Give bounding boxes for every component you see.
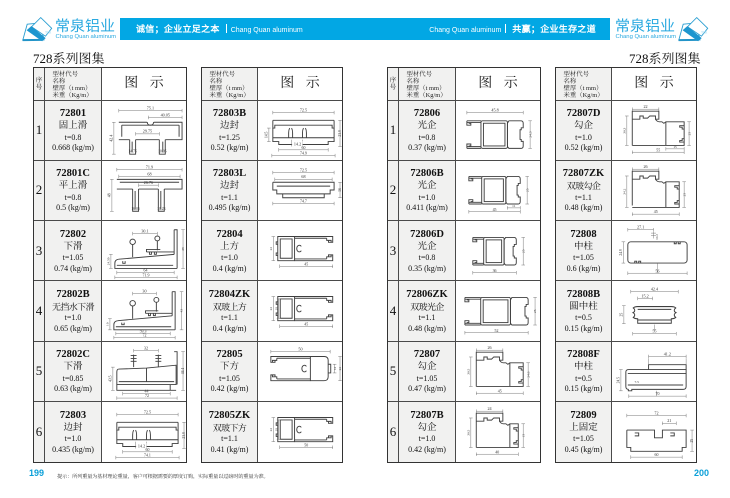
svg-text:30.1: 30.1 <box>141 228 148 233</box>
svg-text:24.9: 24.9 <box>619 249 623 256</box>
svg-text:60: 60 <box>301 146 305 150</box>
svg-text:14.2: 14.2 <box>137 443 144 448</box>
svg-text:22: 22 <box>269 307 273 311</box>
svg-text:40: 40 <box>495 450 499 454</box>
svg-text:43.5: 43.5 <box>108 376 112 383</box>
svg-text:74.9: 74.9 <box>300 152 307 156</box>
svg-text:34.2: 34.2 <box>622 189 626 195</box>
svg-text:72.5: 72.5 <box>299 108 306 113</box>
svg-text:72: 72 <box>654 410 658 415</box>
svg-text:32: 32 <box>143 346 147 351</box>
svg-text:25: 25 <box>619 313 623 317</box>
svg-text:74.7: 74.7 <box>300 200 307 204</box>
svg-text:25: 25 <box>525 189 529 193</box>
svg-text:30: 30 <box>142 288 146 293</box>
svg-text:41.2: 41.2 <box>663 352 670 357</box>
svg-text:19: 19 <box>274 428 278 432</box>
svg-text:38: 38 <box>181 247 185 251</box>
svg-text:30.5: 30.5 <box>466 429 470 435</box>
svg-text:15: 15 <box>673 145 677 149</box>
svg-text:40.05: 40.05 <box>160 112 169 117</box>
svg-text:29.75: 29.75 <box>142 129 151 134</box>
svg-text:55: 55 <box>652 330 656 334</box>
svg-text:24.6: 24.6 <box>526 372 530 378</box>
svg-text:25: 25 <box>521 249 525 253</box>
svg-text:71.9: 71.9 <box>145 165 152 170</box>
svg-text:55: 55 <box>656 148 660 152</box>
svg-text:25: 25 <box>690 439 694 443</box>
svg-text:44: 44 <box>144 390 148 394</box>
svg-text:15.2: 15.2 <box>641 293 648 298</box>
svg-text:23.9: 23.9 <box>182 432 186 439</box>
svg-text:45: 45 <box>304 262 308 266</box>
svg-text:60: 60 <box>654 453 658 457</box>
svg-text:50: 50 <box>304 443 308 447</box>
svg-text:26: 26 <box>487 345 491 350</box>
svg-text:22: 22 <box>338 367 342 371</box>
svg-text:10.05: 10.05 <box>158 150 167 154</box>
svg-text:15: 15 <box>521 434 525 438</box>
svg-text:72: 72 <box>142 334 146 338</box>
svg-text:72.5: 72.5 <box>299 168 306 173</box>
svg-text:10.2: 10.2 <box>654 233 658 239</box>
svg-text:50: 50 <box>298 347 302 352</box>
svg-text:25: 25 <box>533 309 537 313</box>
svg-text:68: 68 <box>301 175 305 180</box>
svg-text:7.5: 7.5 <box>634 380 639 384</box>
svg-text:44.4: 44.4 <box>181 368 185 375</box>
svg-text:14: 14 <box>332 367 336 371</box>
svg-text:24.5: 24.5 <box>616 377 620 384</box>
svg-text:64: 64 <box>143 268 147 272</box>
svg-text:22: 22 <box>269 246 273 250</box>
svg-text:74.1: 74.1 <box>144 454 151 458</box>
svg-text:45: 45 <box>497 389 501 393</box>
svg-text:68: 68 <box>147 172 151 177</box>
svg-text:72.5: 72.5 <box>143 409 150 414</box>
svg-text:14.2: 14.2 <box>293 141 300 146</box>
svg-text:16.05: 16.05 <box>131 207 140 211</box>
svg-text:52: 52 <box>494 329 498 333</box>
svg-text:43: 43 <box>179 309 183 313</box>
svg-text:30.3: 30.3 <box>622 128 626 134</box>
svg-text:26.76: 26.76 <box>143 180 152 185</box>
svg-text:10.23: 10.23 <box>157 207 166 211</box>
svg-text:26: 26 <box>643 164 647 169</box>
svg-text:常泉: 常泉 <box>45 30 52 35</box>
svg-text:25: 25 <box>687 132 691 136</box>
svg-text:48: 48 <box>106 194 111 198</box>
svg-text:45: 45 <box>304 322 308 326</box>
svg-text:36: 36 <box>492 268 496 272</box>
svg-text:24.59: 24.59 <box>106 257 110 265</box>
svg-text:21: 21 <box>667 418 671 423</box>
svg-text:22: 22 <box>643 104 647 109</box>
svg-text:45: 45 <box>492 208 496 212</box>
svg-text:45.8: 45.8 <box>491 108 498 113</box>
svg-text:22: 22 <box>269 428 273 432</box>
svg-text:23.9: 23.9 <box>338 130 342 137</box>
svg-text:72: 72 <box>145 394 149 398</box>
svg-text:71.9: 71.9 <box>142 273 149 277</box>
svg-text:42.4: 42.4 <box>108 135 113 142</box>
svg-text:70: 70 <box>655 392 659 396</box>
svg-text:14.75: 14.75 <box>128 150 137 154</box>
svg-text:24.3: 24.3 <box>528 131 532 137</box>
svg-text:56: 56 <box>655 269 659 273</box>
svg-text:11: 11 <box>512 204 516 208</box>
svg-text:14.5: 14.5 <box>264 132 268 139</box>
svg-text:75.1: 75.1 <box>146 106 153 111</box>
svg-text:常泉: 常泉 <box>701 30 708 35</box>
svg-text:27.1: 27.1 <box>637 224 644 229</box>
svg-text:24: 24 <box>487 406 491 411</box>
svg-text:60: 60 <box>145 448 149 452</box>
svg-text:10: 10 <box>105 322 109 326</box>
svg-text:45: 45 <box>653 211 657 215</box>
svg-text:30.5: 30.5 <box>466 369 470 375</box>
svg-text:42.4: 42.4 <box>650 286 657 291</box>
svg-text:16: 16 <box>338 188 342 192</box>
svg-text:19: 19 <box>274 307 278 311</box>
svg-text:25: 25 <box>682 193 686 197</box>
